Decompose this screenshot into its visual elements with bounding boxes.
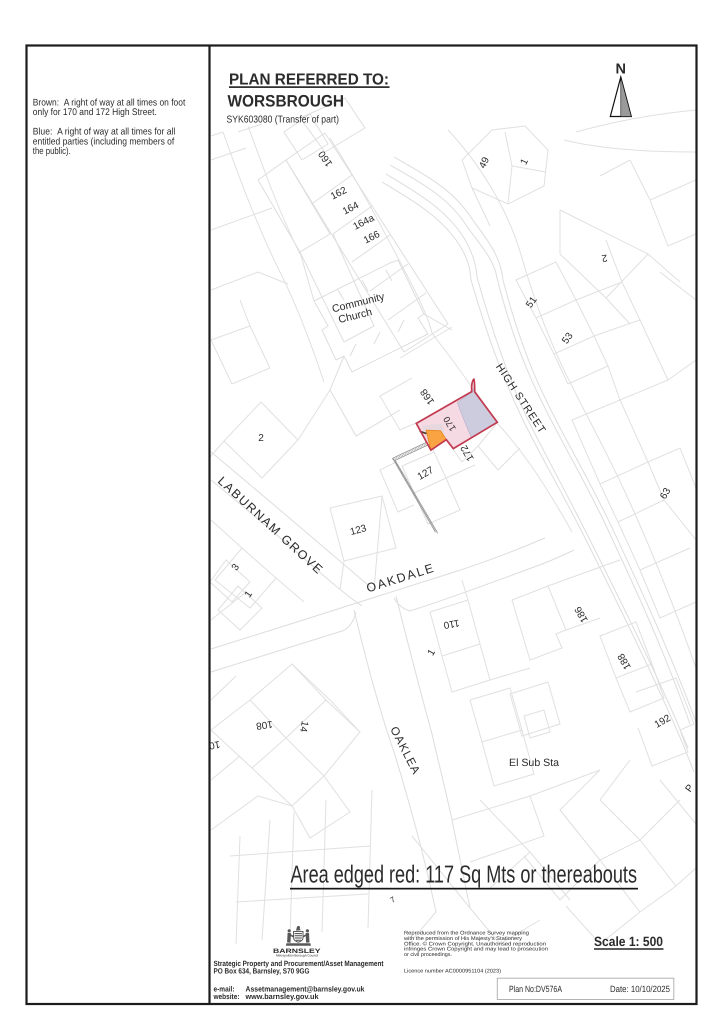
- svg-text:164: 164: [341, 200, 361, 218]
- svg-text:127: 127: [416, 465, 436, 483]
- svg-text:Scale 1: 500: Scale 1: 500: [594, 934, 663, 949]
- svg-text:LABURNAM GROVE: LABURNAM GROVE: [215, 474, 326, 578]
- svg-text:63: 63: [658, 486, 673, 502]
- svg-text:only for 170 and 172 High Stre: only for 170 and 172 High Street.: [33, 107, 157, 118]
- svg-text:WORSBROUGH: WORSBROUGH: [228, 91, 345, 110]
- svg-text:2: 2: [258, 433, 264, 444]
- svg-text:Licence number AC0000951104 (2: Licence number AC0000951104 (2023): [404, 969, 501, 975]
- svg-text:P: P: [684, 782, 697, 794]
- svg-text:OAKDALE: OAKDALE: [365, 561, 437, 596]
- svg-text:110: 110: [442, 617, 460, 631]
- svg-text:www.barnsley.gov.uk: www.barnsley.gov.uk: [245, 992, 320, 1001]
- svg-text:7: 7: [389, 895, 398, 905]
- svg-text:53: 53: [560, 330, 576, 346]
- svg-text:188: 188: [616, 651, 634, 671]
- svg-text:PLAN REFERRED TO:: PLAN REFERRED TO:: [229, 72, 389, 89]
- svg-text:2: 2: [600, 252, 608, 264]
- svg-text:162: 162: [329, 185, 349, 203]
- svg-text:OAKLEA: OAKLEA: [387, 724, 422, 777]
- svg-text:164a: 164a: [351, 213, 376, 233]
- svg-text:168: 168: [418, 386, 437, 406]
- svg-text:186: 186: [573, 604, 591, 624]
- svg-text:website:: website:: [213, 992, 240, 1001]
- svg-text:PO Box 634, Barnsley, S70 9GG: PO Box 634, Barnsley, S70 9GG: [214, 967, 310, 976]
- svg-text:El Sub Sta: El Sub Sta: [509, 757, 559, 769]
- svg-text:1: 1: [519, 157, 532, 167]
- svg-text:Date: 10/10/2025: Date: 10/10/2025: [610, 984, 670, 994]
- svg-text:HIGH STREET: HIGH STREET: [493, 362, 548, 437]
- svg-text:Plan No:DV576A: Plan No:DV576A: [509, 984, 562, 994]
- svg-text:1: 1: [426, 647, 439, 658]
- svg-text:108: 108: [255, 718, 273, 731]
- svg-text:172: 172: [459, 442, 477, 462]
- svg-text:160: 160: [316, 148, 335, 168]
- svg-text:3: 3: [230, 562, 242, 573]
- svg-text:49: 49: [477, 155, 492, 170]
- svg-text:1: 1: [243, 589, 255, 600]
- svg-text:14: 14: [297, 720, 310, 733]
- svg-text:or civil proceedings.: or civil proceedings.: [404, 952, 452, 958]
- svg-text:Metropolitan Borough Council: Metropolitan Borough Council: [276, 953, 318, 957]
- svg-text:the public).: the public).: [33, 146, 71, 157]
- svg-text:166: 166: [362, 229, 382, 247]
- svg-text:123: 123: [349, 523, 368, 538]
- svg-text:Area edged red: 117 Sq Mts or: Area edged red: 117 Sq Mts or thereabout…: [291, 862, 638, 889]
- svg-text:SYK603080 (Transfer of part): SYK603080 (Transfer of part): [227, 114, 340, 125]
